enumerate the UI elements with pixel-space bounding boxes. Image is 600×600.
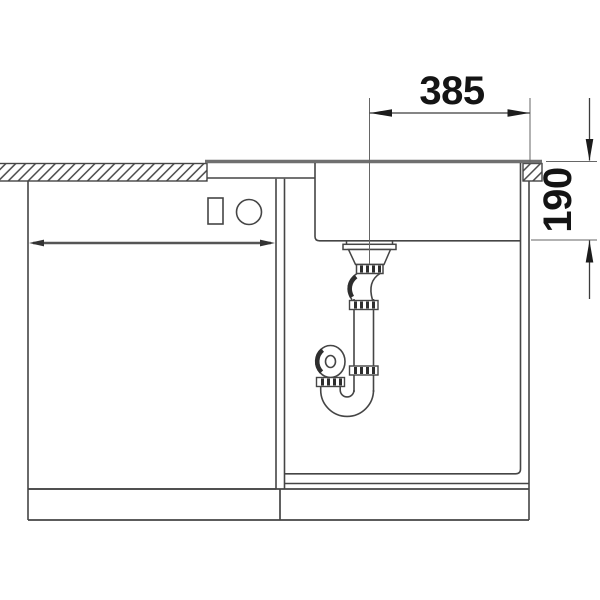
arrowhead-left	[29, 240, 44, 247]
worktop-section-left	[0, 164, 207, 182]
width-arrow-line	[29, 240, 275, 247]
loop-collar	[317, 350, 322, 372]
trap-u-bend	[321, 390, 374, 416]
elbow-collar	[350, 277, 356, 298]
dimension-385: 385	[370, 69, 531, 264]
socket-circle	[237, 200, 262, 225]
dimension-vertical-label: 190	[536, 167, 580, 232]
sink-installation-diagram: 385 190	[0, 0, 600, 600]
arrowhead-left	[370, 109, 392, 117]
arrowhead-right	[508, 109, 530, 117]
left-cabinet-fittings	[208, 198, 262, 225]
dimension-190: 190	[531, 98, 597, 299]
basin-right-wall-and-cabinet-liner	[285, 163, 521, 474]
sink-basin	[285, 163, 521, 474]
arrowhead-up	[586, 241, 594, 263]
pipe-clamps	[317, 301, 379, 387]
siphon-trap	[316, 274, 380, 417]
left-cabinet	[28, 179, 276, 520]
diagram-canvas: 385 190	[0, 0, 600, 600]
arrowhead-right	[260, 240, 275, 247]
dimension-horizontal-label: 385	[419, 69, 484, 113]
socket-rect	[208, 198, 223, 224]
plinth	[28, 489, 529, 520]
arrowhead-down	[586, 139, 594, 161]
